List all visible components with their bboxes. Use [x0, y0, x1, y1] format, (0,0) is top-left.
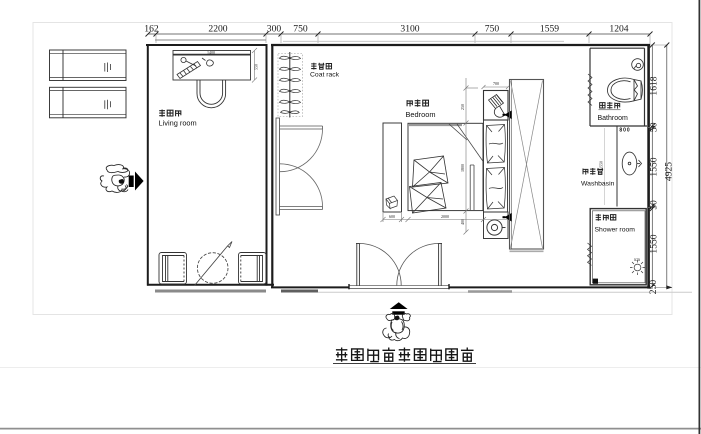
svg-text:3100: 3100: [400, 24, 419, 35]
svg-text:250: 250: [460, 104, 465, 110]
svg-text:50: 50: [649, 122, 660, 132]
svg-text:Shower room: Shower room: [595, 227, 636, 234]
svg-text:Coat rack: Coat rack: [310, 71, 340, 78]
svg-text:800: 800: [619, 128, 630, 134]
svg-text:1204: 1204: [609, 24, 628, 35]
svg-text:1618: 1618: [649, 76, 660, 95]
svg-text:4925: 4925: [664, 162, 675, 181]
svg-text:1559: 1559: [540, 24, 559, 35]
svg-text:1550: 1550: [649, 157, 660, 176]
svg-text:Living room: Living room: [159, 119, 197, 128]
svg-text:750: 750: [293, 24, 308, 35]
svg-text:1550: 1550: [649, 234, 660, 253]
svg-text:162: 162: [144, 24, 159, 35]
svg-text:50: 50: [649, 200, 660, 210]
svg-text:600: 600: [389, 214, 395, 219]
svg-text:575: 575: [634, 258, 640, 262]
svg-text:Washbasin: Washbasin: [581, 181, 615, 188]
svg-text:250: 250: [648, 280, 659, 295]
svg-text:1800: 1800: [460, 164, 465, 172]
svg-text:2200: 2200: [208, 24, 227, 35]
svg-text:Bathroom: Bathroom: [598, 115, 629, 122]
svg-text:2000: 2000: [441, 214, 449, 219]
svg-text:700: 700: [493, 81, 499, 86]
svg-text:750: 750: [485, 24, 500, 35]
svg-text:1550: 1550: [599, 161, 604, 169]
svg-text:1400: 1400: [207, 50, 215, 55]
svg-text:300: 300: [267, 24, 282, 35]
svg-text:400: 400: [460, 219, 465, 225]
svg-text:550: 550: [254, 64, 259, 70]
svg-text:Bedroom: Bedroom: [406, 110, 436, 119]
